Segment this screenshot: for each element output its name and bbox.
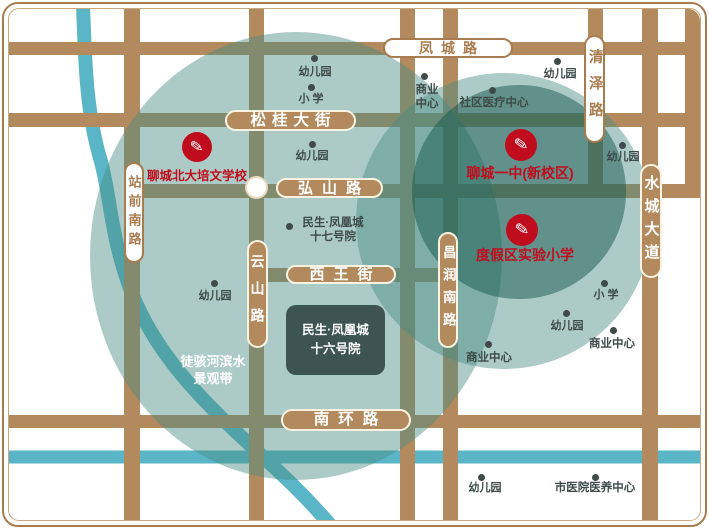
poi-dot [592,474,599,481]
poi-dot [421,73,428,80]
poi-dot [485,341,492,348]
pencil-icon: ✎ [514,219,531,241]
poi-kindergarten-4: 幼儿园 [587,151,659,164]
river-label-line: 徒骇河滨水 [163,353,263,370]
poi-commercial-1: 商业 中心 [406,84,448,111]
project-name: 民生·凤凰城 [302,321,369,340]
poi-dot [308,84,315,91]
poi-line: 中心 [406,98,448,112]
poi-dot [478,474,485,481]
poi-kindergarten-6: 幼儿园 [179,290,251,303]
poi-dot [311,55,318,62]
poi-kindergarten-5: 幼儿园 [531,320,603,333]
poi-primary-school-1: 小 学 [271,93,351,106]
river-landscape-label: 徒骇河滨水 景观带 [163,353,263,387]
poi-dot [489,87,496,94]
poi-dot [619,142,626,149]
school-label-yizhong: 聊城一中(新校区) [450,163,590,183]
poi-phoenix-17: 民生·凤凰城 十七号院 [292,217,374,244]
road-badge-hongshan: 弘山路 [276,178,383,198]
location-map: 凤城路 松桂大街 弘山路 西王街 南环路 站前南路 云山路 昌润南路 清泽路 水… [0,0,709,529]
road-badge-qingze: 清泽路 [584,35,605,143]
poi-kindergarten-1: 幼儿园 [275,66,355,79]
road-badge-songgui: 松桂大街 [225,110,356,131]
school-marker-beida: ✎ [182,132,212,162]
poi-dot [211,280,218,287]
river-label-line: 景观带 [163,370,263,387]
poi-line: 十七号院 [292,231,374,245]
school-label-dujiaqu: 度假区实验小学 [455,245,595,265]
poi-dot [309,141,316,148]
poi-city-hospital-care: 市医院医养中心 [550,482,640,495]
pencil-icon: ✎ [513,134,530,156]
project-box: 民生·凤凰城 十六号院 [286,305,385,375]
school-marker-dujiaqu: ✎ [506,214,538,246]
poi-dot [601,280,608,287]
poi-dot [610,327,617,334]
poi-kindergarten-3: 幼儿园 [524,68,596,81]
road-badge-nanhuan: 南环路 [281,409,411,431]
school-marker-yizhong: ✎ [505,129,537,161]
poi-line: 商业 [406,84,448,98]
road-badge-fengcheng: 凤城路 [383,38,513,58]
road-badge-xiwang: 西王街 [286,265,396,284]
poi-dot [554,58,561,65]
poi-line: 民生·凤凰城 [292,217,374,231]
pencil-icon: ✎ [189,136,205,158]
poi-primary-school-2: 小 学 [566,289,646,302]
poi-commercial-3: 商业中心 [453,352,525,365]
road-vertical-east [685,0,700,197]
school-label-beida: 聊城北大培文学校 [140,165,254,184]
road-badge-shuicheng: 水城大道 [640,164,662,278]
poi-kindergarten-7: 幼儿园 [449,482,521,495]
map-canvas: 凤城路 松桂大街 弘山路 西王街 南环路 站前南路 云山路 昌润南路 清泽路 水… [0,0,709,529]
poi-dot [563,310,570,317]
poi-commercial-2: 商业中心 [576,338,648,351]
poi-community-medical: 社区医疗中心 [452,97,536,110]
poi-kindergarten-2: 幼儿园 [272,150,352,163]
project-phase: 十六号院 [310,340,360,359]
